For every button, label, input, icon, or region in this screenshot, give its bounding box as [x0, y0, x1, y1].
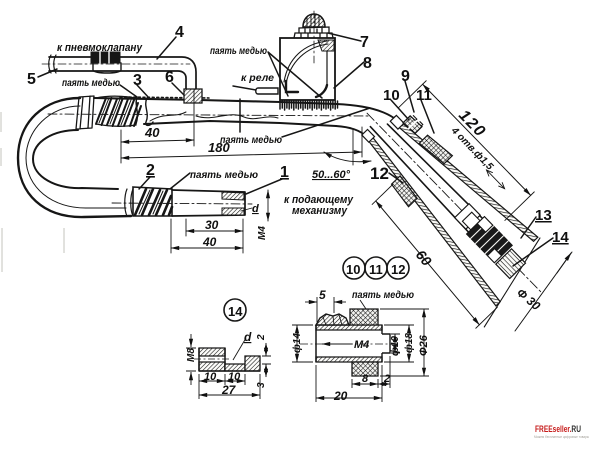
svg-text:180: 180 [208, 140, 230, 155]
svg-text:ф14: ф14 [291, 333, 303, 353]
svg-text:40: 40 [144, 125, 160, 140]
svg-text:М4: М4 [257, 226, 268, 240]
svg-text:8: 8 [362, 373, 369, 385]
svg-text:50...60°: 50...60° [312, 169, 351, 181]
svg-text:5: 5 [27, 71, 36, 88]
svg-text:11: 11 [369, 262, 383, 277]
svg-text:7: 7 [360, 34, 369, 51]
svg-text:d: d [252, 203, 259, 215]
svg-text:к реле: к реле [241, 73, 274, 84]
svg-text:8: 8 [363, 55, 372, 72]
svg-text:М8: М8 [186, 348, 197, 362]
svg-text:3: 3 [256, 382, 267, 388]
svg-text:d: d [244, 330, 252, 344]
svg-text:2: 2 [256, 334, 267, 341]
svg-text:ф10: ф10 [389, 336, 401, 356]
svg-text:10: 10 [346, 262, 360, 277]
svg-text:4: 4 [175, 24, 184, 41]
svg-text:40: 40 [202, 235, 217, 249]
svg-text:12: 12 [391, 262, 405, 277]
svg-text:14: 14 [228, 304, 243, 319]
svg-text:ф18: ф18 [403, 333, 415, 353]
svg-text:М4: М4 [354, 339, 369, 351]
svg-text:паять медью: паять медью [352, 290, 414, 301]
svg-text:14: 14 [552, 229, 569, 246]
svg-text:2: 2 [146, 162, 155, 179]
svg-text:1: 1 [280, 164, 289, 181]
svg-text:паять медью: паять медью [190, 170, 258, 181]
svg-text:11: 11 [416, 87, 432, 104]
svg-text:13: 13 [535, 207, 552, 224]
svg-text:12: 12 [370, 164, 389, 183]
svg-text:2: 2 [383, 373, 390, 385]
svg-text:3: 3 [133, 72, 142, 89]
svg-text:паять медью: паять медью [62, 78, 120, 89]
svg-text:20: 20 [333, 389, 348, 403]
svg-text:механизму: механизму [292, 205, 348, 217]
svg-text:Ф26: Ф26 [418, 334, 430, 356]
svg-text:5: 5 [319, 288, 326, 302]
svg-text:паять медью: паять медью [210, 46, 267, 57]
svg-text:10: 10 [383, 87, 400, 104]
svg-text:Можем бесплатные цифровые това: Можем бесплатные цифровые товары [534, 435, 590, 439]
svg-text:10: 10 [204, 371, 217, 383]
svg-text:9: 9 [401, 68, 410, 85]
svg-text:к пневмоклапану: к пневмоклапану [57, 42, 143, 54]
svg-text:27: 27 [221, 383, 237, 397]
svg-text:6: 6 [165, 69, 174, 86]
svg-text:10: 10 [228, 371, 241, 383]
svg-text:FREEseller.RU: FREEseller.RU [535, 424, 581, 435]
svg-text:30: 30 [205, 218, 219, 232]
